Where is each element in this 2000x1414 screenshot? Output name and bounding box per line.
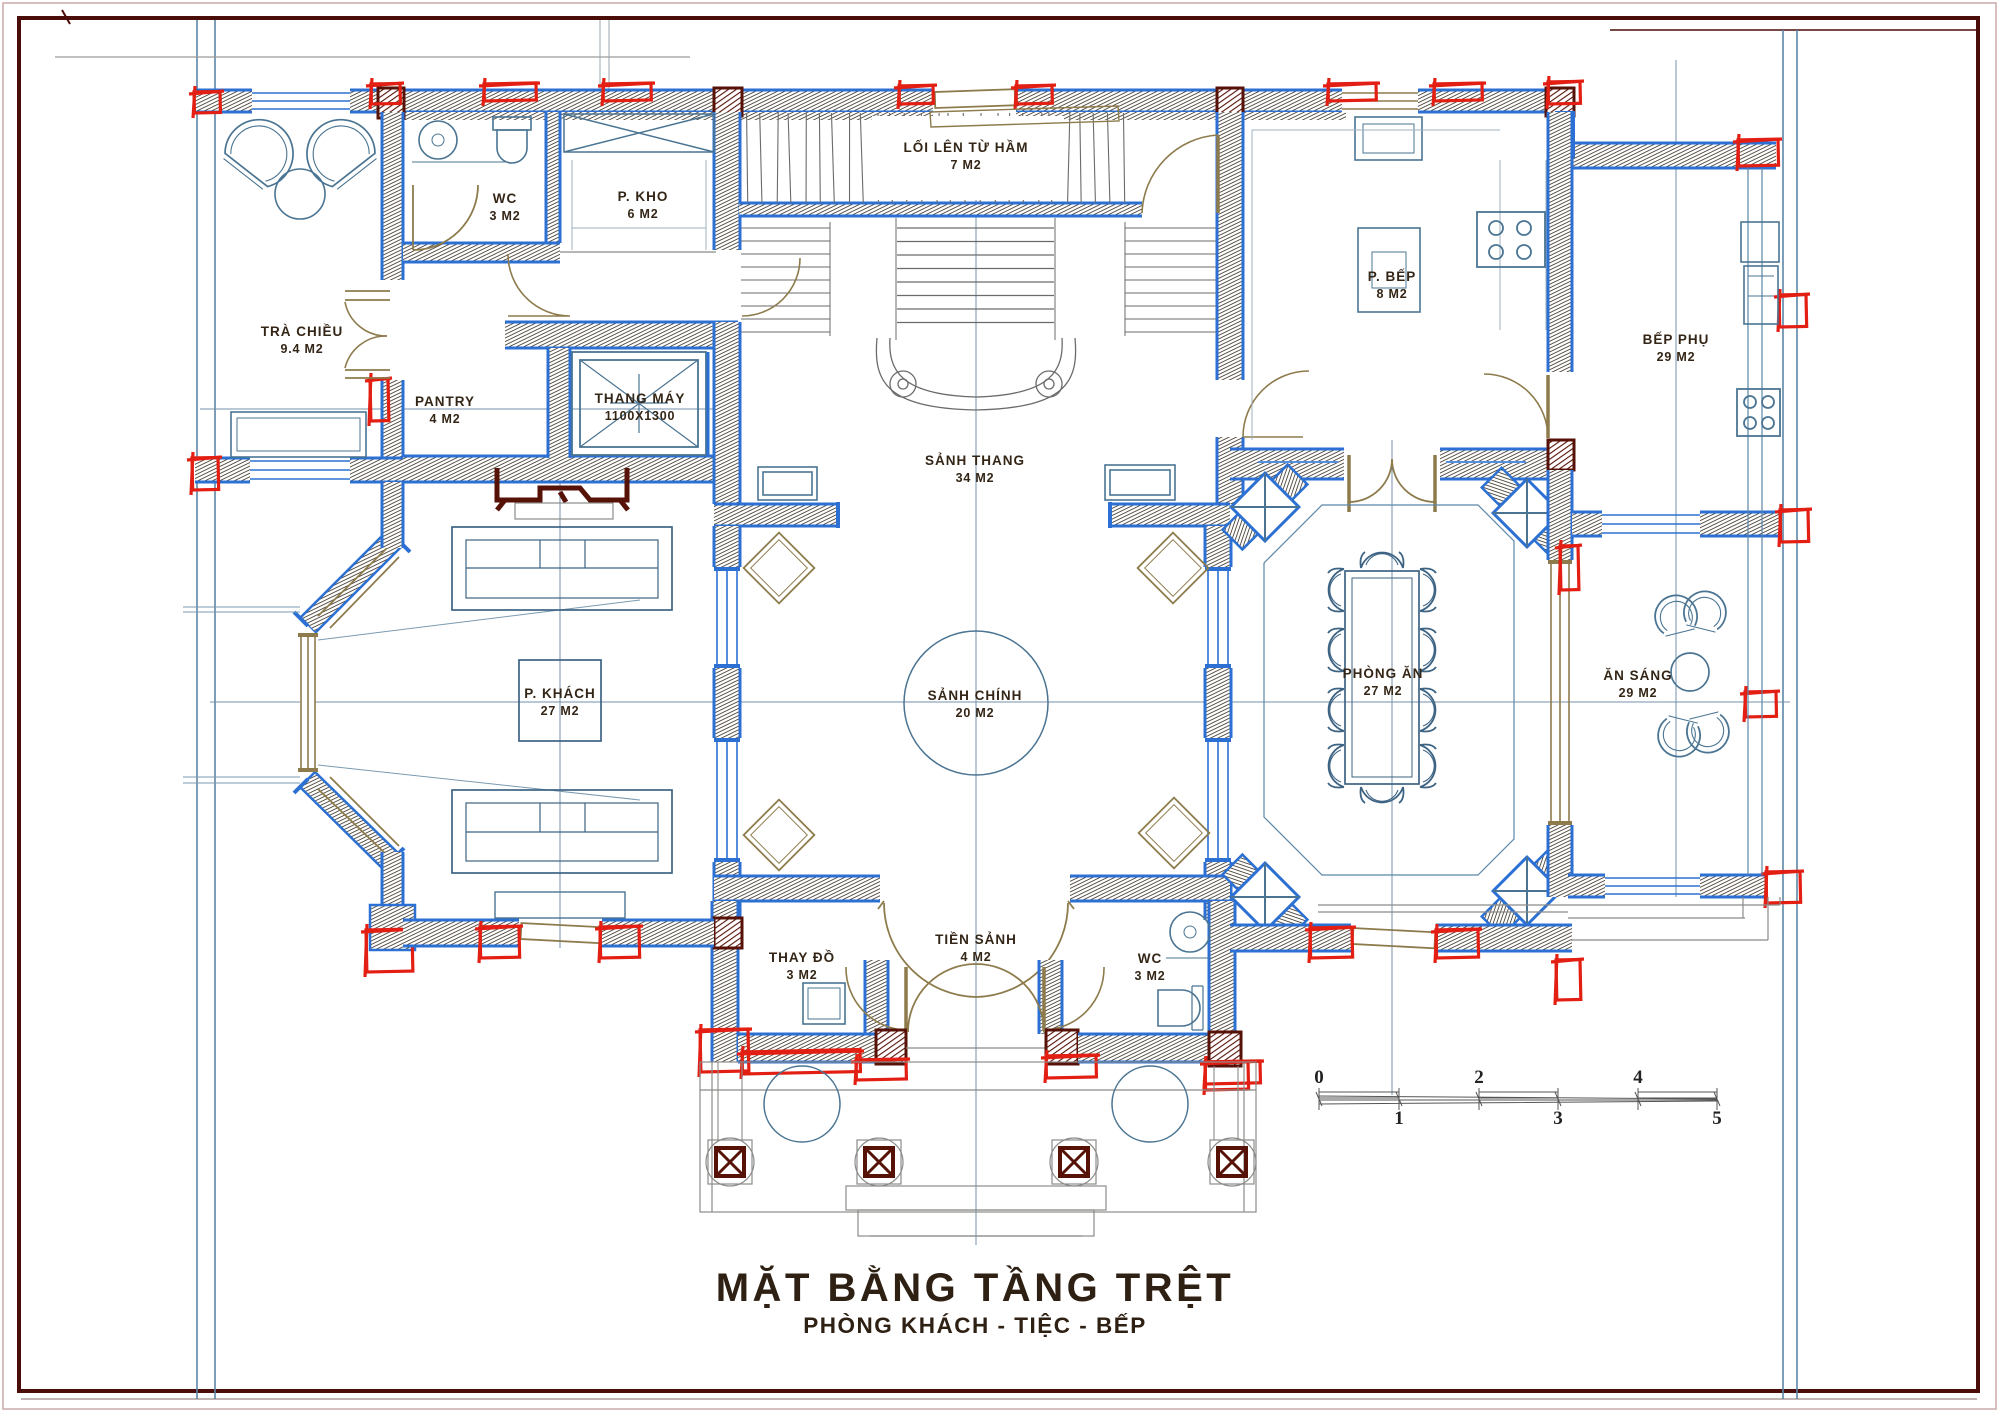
svg-text:P. KHO: P. KHO (618, 189, 669, 204)
svg-text:7 M2: 7 M2 (951, 158, 982, 172)
svg-text:P. KHÁCH: P. KHÁCH (524, 686, 596, 701)
svg-text:MẶT BẰNG TẦNG TRỆT: MẶT BẰNG TẦNG TRỆT (716, 1264, 1235, 1310)
svg-text:4 M2: 4 M2 (961, 950, 992, 964)
svg-text:0: 0 (1314, 1067, 1324, 1088)
svg-text:ĂN SÁNG: ĂN SÁNG (1603, 668, 1672, 683)
svg-text:27 M2: 27 M2 (1364, 684, 1403, 698)
svg-text:THAY ĐỒ: THAY ĐỒ (769, 950, 835, 965)
svg-text:PHÒNG ĂN: PHÒNG ĂN (1343, 666, 1424, 681)
svg-text:3: 3 (1553, 1108, 1563, 1129)
svg-text:BẾP PHỤ: BẾP PHỤ (1643, 332, 1710, 347)
svg-text:27 M2: 27 M2 (541, 704, 580, 718)
svg-text:34 M2: 34 M2 (956, 471, 995, 485)
svg-text:3 M2: 3 M2 (1135, 969, 1166, 983)
svg-text:LỐI LÊN TỪ HẦM: LỐI LÊN TỪ HẦM (904, 140, 1029, 155)
svg-text:29 M2: 29 M2 (1619, 686, 1658, 700)
svg-text:3 M2: 3 M2 (490, 209, 521, 223)
svg-text:20 M2: 20 M2 (956, 706, 995, 720)
svg-text:PHÒNG KHÁCH - TIỆC - BẾP: PHÒNG KHÁCH - TIỆC - BẾP (803, 1313, 1147, 1338)
svg-text:29 M2: 29 M2 (1657, 350, 1696, 364)
svg-text:6 M2: 6 M2 (628, 207, 659, 221)
svg-text:THANG MÁY: THANG MÁY (595, 391, 686, 406)
svg-text:1: 1 (1394, 1108, 1404, 1129)
svg-text:WC: WC (493, 191, 518, 206)
svg-text:WC: WC (1138, 951, 1163, 966)
svg-text:5: 5 (1712, 1108, 1722, 1129)
svg-text:PANTRY: PANTRY (415, 394, 475, 409)
svg-text:4: 4 (1633, 1067, 1643, 1088)
svg-text:9.4 M2: 9.4 M2 (280, 342, 323, 356)
svg-text:8 M2: 8 M2 (1377, 287, 1408, 301)
svg-text:4 M2: 4 M2 (430, 412, 461, 426)
svg-text:3 M2: 3 M2 (787, 968, 818, 982)
svg-text:P. BẾP: P. BẾP (1368, 269, 1417, 284)
svg-text:TIỀN SẢNH: TIỀN SẢNH (935, 932, 1017, 947)
svg-text:TRÀ CHIỀU: TRÀ CHIỀU (261, 324, 344, 339)
svg-text:1100X1300: 1100X1300 (605, 409, 675, 423)
svg-text:2: 2 (1474, 1067, 1484, 1088)
svg-text:SẢNH CHÍNH: SẢNH CHÍNH (928, 688, 1023, 703)
svg-text:SẢNH THANG: SẢNH THANG (925, 453, 1025, 468)
